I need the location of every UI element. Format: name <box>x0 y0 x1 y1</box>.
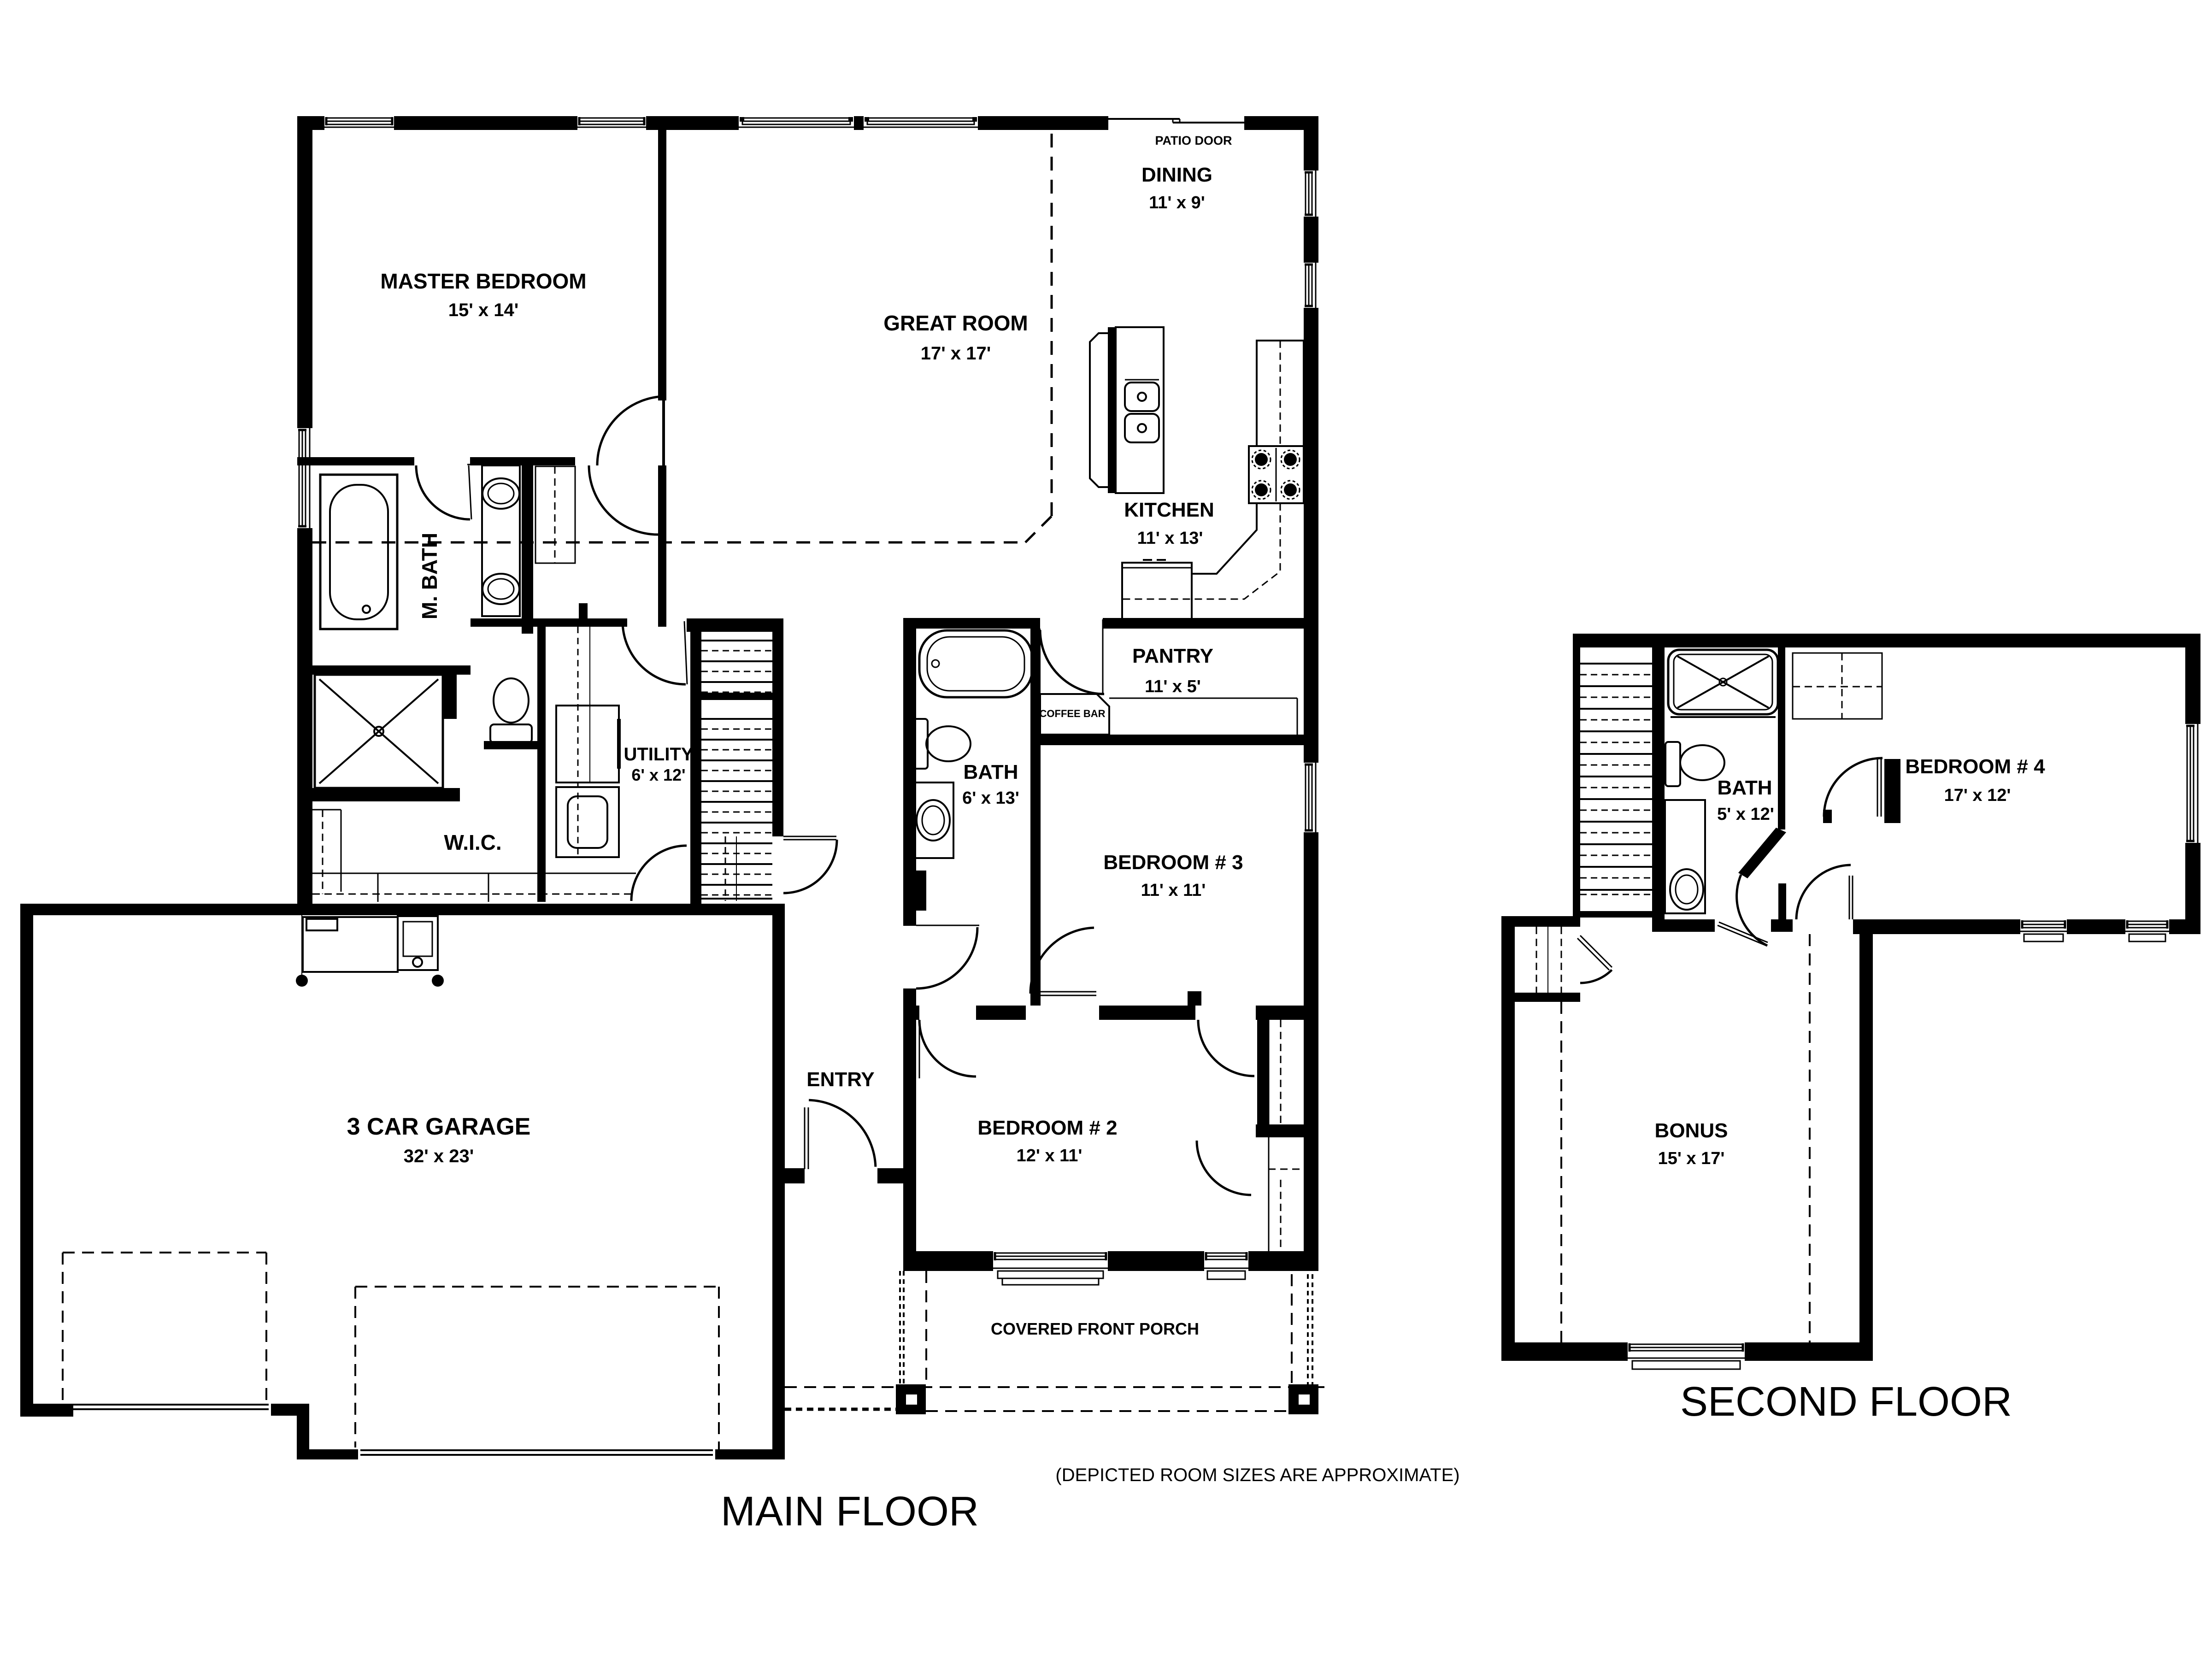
svg-text:BEDROOM # 3: BEDROOM # 3 <box>1103 851 1243 874</box>
svg-text:BATH: BATH <box>1718 777 1772 799</box>
svg-text:5' x 12': 5' x 12' <box>1717 805 1774 824</box>
svg-text:3 CAR GARAGE: 3 CAR GARAGE <box>347 1113 531 1140</box>
svg-text:17' x 17': 17' x 17' <box>921 343 991 364</box>
svg-text:MASTER BEDROOM: MASTER BEDROOM <box>380 269 586 293</box>
svg-text:W.I.C.: W.I.C. <box>444 830 501 854</box>
svg-text:11' x 9': 11' x 9' <box>1149 193 1205 212</box>
svg-text:DINING: DINING <box>1141 164 1212 186</box>
svg-text:SECOND FLOOR: SECOND FLOOR <box>1680 1379 2012 1425</box>
svg-text:BATH: BATH <box>964 761 1018 783</box>
svg-text:KITCHEN: KITCHEN <box>1124 499 1214 521</box>
svg-text:BEDROOM # 2: BEDROOM # 2 <box>977 1117 1117 1139</box>
svg-text:M. BATH: M. BATH <box>418 533 441 619</box>
svg-text:UTILITY: UTILITY <box>624 744 693 765</box>
svg-text:11' x 5': 11' x 5' <box>1145 677 1201 696</box>
svg-text:MAIN FLOOR: MAIN FLOOR <box>721 1488 979 1535</box>
svg-text:17' x 12': 17' x 12' <box>1944 786 2011 805</box>
svg-text:6' x 12': 6' x 12' <box>631 765 685 784</box>
svg-text:ENTRY: ENTRY <box>806 1068 875 1091</box>
svg-text:12' x 11': 12' x 11' <box>1017 1146 1082 1165</box>
svg-text:COVERED FRONT PORCH: COVERED FRONT PORCH <box>991 1319 1199 1338</box>
svg-text:11' x 11': 11' x 11' <box>1141 881 1206 900</box>
svg-text:15' x 17': 15' x 17' <box>1658 1149 1725 1168</box>
svg-text:GREAT ROOM: GREAT ROOM <box>883 311 1028 335</box>
svg-text:BEDROOM # 4: BEDROOM # 4 <box>1905 755 2045 778</box>
svg-text:(DEPICTED ROOM SIZES ARE APPRO: (DEPICTED ROOM SIZES ARE APPROXIMATE) <box>1055 1465 1459 1485</box>
svg-text:6' x 13': 6' x 13' <box>962 788 1019 808</box>
svg-text:BONUS: BONUS <box>1655 1119 1728 1142</box>
svg-text:PANTRY: PANTRY <box>1132 645 1213 667</box>
svg-text:COFFEE BAR: COFFEE BAR <box>1040 708 1106 719</box>
svg-text:PATIO DOOR: PATIO DOOR <box>1155 134 1232 147</box>
svg-text:32' x 23': 32' x 23' <box>404 1146 474 1166</box>
svg-text:15' x 14': 15' x 14' <box>448 300 518 320</box>
svg-text:11' x 13': 11' x 13' <box>1137 529 1203 548</box>
